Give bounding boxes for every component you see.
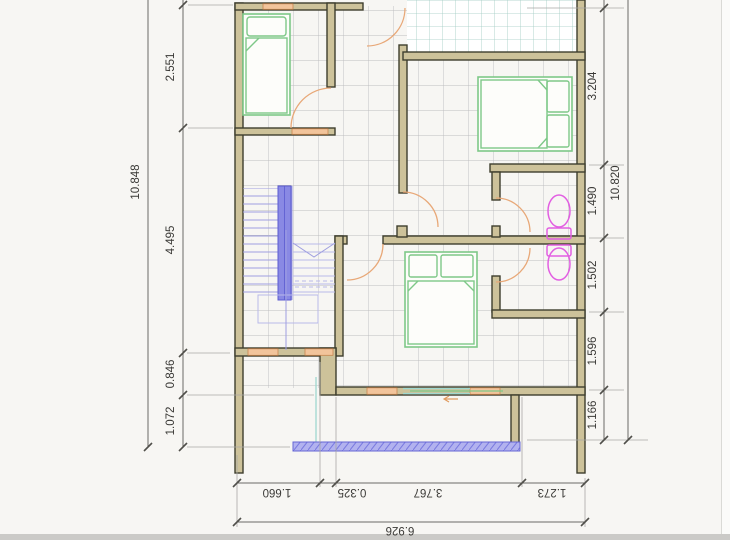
wall-hall-right [335,236,343,356]
wall-terrace-left [399,45,407,193]
double-bed-bedroom2 [478,77,572,151]
double-bed-bedroom3 [405,252,477,347]
dim-label-left-total: 10.848 [130,164,142,199]
wall-bedroom2-bottom [490,164,585,172]
wall-bedroom1-right [327,3,335,87]
dim-label-bottom-4: 1.273 [538,486,567,498]
window-icon [367,388,397,395]
wall-bath-left-upper [492,172,500,200]
wall-post-1 [397,226,407,237]
dim-label-right-5: 1.166 [587,401,599,430]
dim-label-bottom-total: 6.926 [386,524,415,536]
dim-label-right-2: 1.490 [587,187,599,216]
window-icon [292,129,328,135]
dim-label-right-3: 1.502 [587,261,599,290]
window-icon [263,4,293,10]
bottom-edge-strip [0,534,730,540]
dim-label-right-4: 1.596 [587,337,599,366]
dim-label-left-4: 1.072 [165,407,177,436]
dim-label-bottom-3: 3.767 [414,486,443,498]
window-icon [305,349,333,356]
floor-plan-drawing: 2.551 4.495 0.846 1.072 10.848 3.204 1.4… [0,0,730,540]
dim-label-right-1: 3.204 [587,71,599,100]
wall-top [235,3,363,10]
wall-balcony-inner [511,395,519,443]
dim-label-left-3: 0.846 [165,360,177,389]
dim-label-right-total: 10.820 [610,165,622,200]
dim-label-bottom-1: 1.660 [263,486,292,498]
single-bed-bedroom1 [243,14,290,115]
wall-terrace-bottom [403,52,585,60]
page-margin-right [722,0,730,535]
wall-bath-bottom [492,310,585,318]
dim-label-left-1: 2.551 [165,53,177,82]
balcony-railing [293,442,520,451]
wall-mid-long [383,236,585,244]
wall-exterior-left [235,3,243,473]
wall-post-2 [492,226,500,237]
dim-label-left-2: 4.495 [165,226,177,255]
window-icon [248,349,278,356]
cad-floor-plan-viewport[interactable]: 2.551 4.495 0.846 1.072 10.848 3.204 1.4… [0,0,730,540]
dim-label-bottom-2: 0.325 [338,486,367,498]
